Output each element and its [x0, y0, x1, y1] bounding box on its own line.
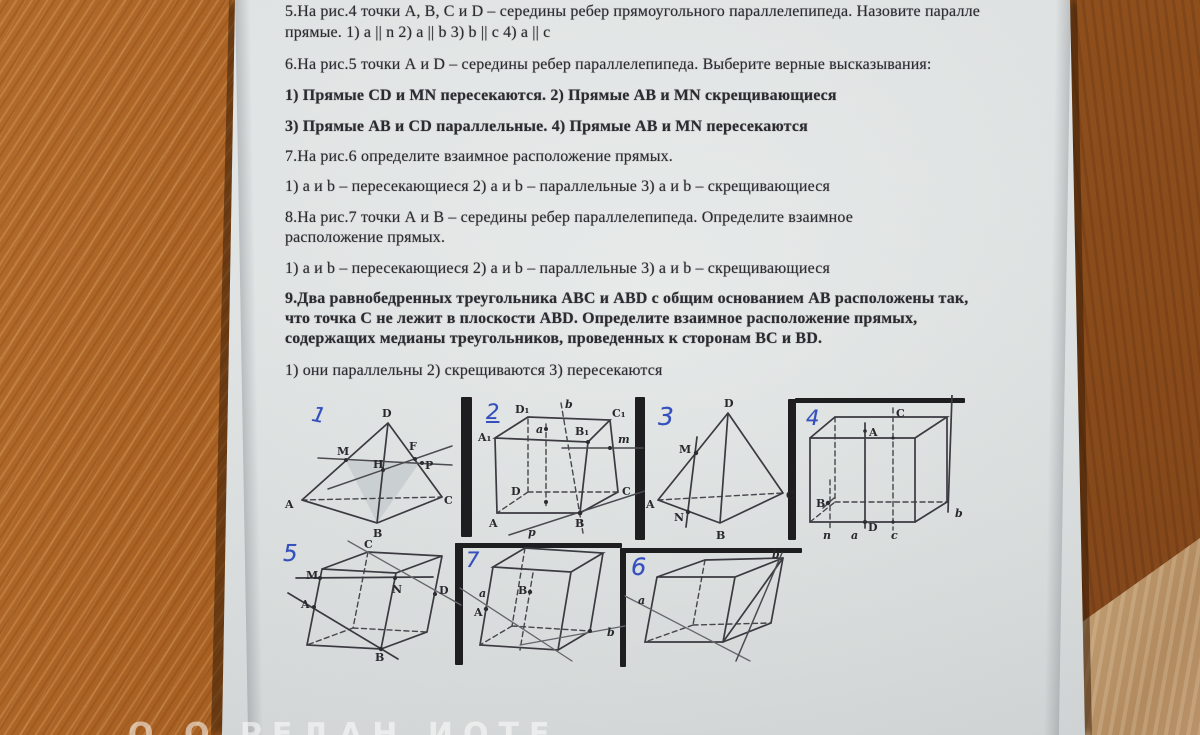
figure-3-tetrahedron: D A B C M N — [645, 395, 795, 545]
problem-8-options: 1) a и b – пересекающиеся 2) a и b – пар… — [285, 260, 830, 278]
problem-6-options-1-2: 1) Прямые CD и MN пересекаются. 2) Прямы… — [285, 87, 837, 105]
problem-9-line-2: что точка С не лежит в плоскости ABD. Оп… — [285, 310, 917, 328]
point-A — [863, 429, 867, 433]
problem-9-line-1: 9.Два равнобедренных треугольника АВС и … — [285, 290, 968, 308]
box-edges — [480, 548, 603, 650]
point-F — [413, 457, 417, 461]
line-label-b: b — [772, 548, 780, 561]
problem-9-line-3: содержащих медианы треугольников, провед… — [285, 330, 822, 348]
point-label-B: B — [816, 497, 825, 510]
point-on-c-top — [891, 436, 894, 439]
point-A — [312, 605, 316, 609]
problem-5-line-1: 5.На рис.4 точки А, В, С и D – середины … — [285, 3, 980, 21]
vertex-label-C: C — [364, 538, 373, 551]
point-N — [393, 576, 397, 580]
point-label-M: M — [306, 569, 318, 582]
line-label-p: p — [528, 526, 536, 539]
line-label-C-top: C — [896, 407, 905, 420]
point-label-M: M — [337, 445, 349, 458]
hidden-edges-D — [497, 417, 618, 513]
vertex-label-D: D — [511, 485, 521, 498]
vertex-label-C: C — [622, 485, 631, 498]
point-label-N: N — [392, 583, 402, 596]
line-label-c: c — [891, 529, 898, 542]
figure-4-parallelepiped: A B C D n a c b — [795, 395, 975, 547]
box-edges — [495, 417, 618, 513]
vertex-label-B: B — [716, 529, 725, 542]
line-label-b: b — [607, 626, 615, 639]
point-label-F: F — [409, 440, 417, 453]
point-A — [484, 607, 488, 611]
point-label-M: M — [679, 443, 691, 456]
point-D — [863, 520, 867, 524]
figure-7-parallelepiped: A B a b — [455, 540, 627, 668]
vertex-label-A: A — [488, 517, 498, 530]
point-label-A: A — [300, 598, 310, 611]
problem-8-line-2: расположение прямых. — [285, 229, 445, 247]
point-label-N: N — [674, 511, 684, 524]
problem-9-options: 1) они параллельны 2) скрещиваются 3) пе… — [285, 362, 662, 380]
vertex-label-D: D — [382, 407, 392, 420]
vertex-label-D1: D₁ — [515, 403, 530, 416]
point-label-A: A — [473, 606, 483, 619]
vertex-label-C1: C₁ — [612, 407, 626, 420]
point-on-a-top — [544, 427, 548, 431]
problem-8-line-1: 8.На рис.7 точки А и В – середины ребер … — [285, 209, 853, 227]
line-label-a: a — [638, 594, 645, 607]
problem-6-heading: 6.На рис.5 точки А и D – середины ребер … — [285, 56, 932, 74]
line-label-b: b — [565, 398, 573, 411]
figure-2-parallelepiped: A₁ D₁ C₁ B₁ A B C D a b m p — [465, 395, 645, 545]
point-on-c-bottom — [891, 520, 894, 523]
vertex-label-C: C — [444, 494, 453, 507]
point-label-D: D — [439, 584, 449, 597]
line-label-a: a — [851, 529, 858, 542]
point-on-b — [588, 629, 592, 633]
point-D — [433, 592, 437, 596]
vertex-label-C: C — [786, 489, 795, 502]
point-label-B: B — [518, 584, 527, 597]
point-label-A: A — [868, 426, 878, 439]
vertex-label-A1: A₁ — [477, 431, 492, 444]
line-label-a: a — [479, 587, 486, 600]
problem-7-heading: 7.На рис.6 определите взаимное расположе… — [285, 148, 673, 166]
watermark-text: О О РЕДАН ИОТЕ — [128, 717, 559, 735]
figure-5-parallelepiped: M C N D A B — [275, 535, 465, 668]
vertex-label-D: D — [724, 397, 734, 410]
line-b — [948, 395, 952, 512]
figure-6-parallelepiped: a b — [618, 545, 803, 670]
vertex-label-B: B — [575, 517, 584, 530]
point-M — [318, 576, 322, 580]
line-label-m: m — [618, 433, 630, 446]
vertex-label-A: A — [284, 498, 294, 511]
point-M — [344, 458, 348, 462]
vertex-label-B1: B₁ — [575, 425, 589, 438]
box-edges — [307, 552, 442, 649]
line-label-b: b — [955, 507, 963, 520]
point-B — [578, 511, 583, 516]
vertex-label-A: A — [645, 498, 655, 511]
point-on-m — [608, 446, 612, 450]
hidden-edges — [307, 552, 427, 645]
point-on-a-bottom — [544, 500, 548, 504]
problem-6-options-3-4: 3) Прямые АВ и CD параллельные. 4) Прямы… — [285, 118, 808, 136]
line-label-n: n — [823, 529, 831, 542]
problem-7-options: 1) a и b – пересекающиеся 2) a и b – пар… — [285, 178, 830, 196]
point-N — [686, 510, 690, 514]
point-label-P: P — [425, 459, 433, 472]
photo-of-worksheet: 5.На рис.4 точки А, В, С и D – середины … — [0, 0, 1200, 735]
problem-5-line-2: прямые. 1) a || n 2) a || b 3) b || c 4)… — [285, 24, 550, 42]
point-P — [420, 461, 424, 465]
point-B — [528, 590, 532, 594]
line-b — [736, 553, 782, 661]
hidden-edges — [480, 548, 590, 645]
vertex-label-B: B — [375, 651, 384, 664]
point-label-D: D — [868, 521, 878, 534]
hidden-edge-AC — [658, 493, 783, 500]
figure-1-tetrahedron: D M F P H A B C — [280, 395, 465, 543]
tetrahedron-edges — [658, 413, 783, 523]
point-M — [694, 451, 698, 455]
line-label-a: a — [536, 423, 543, 436]
point-B — [826, 501, 830, 505]
point-label-H: H — [373, 458, 383, 471]
point-B1 — [586, 440, 590, 444]
